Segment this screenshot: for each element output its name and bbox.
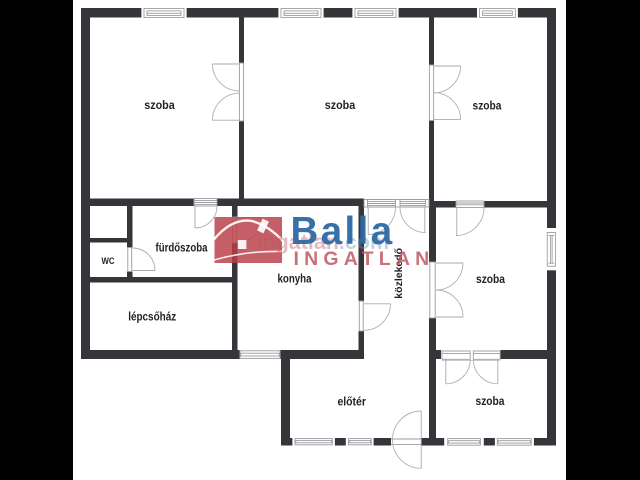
svg-text:fürdőszoba: fürdőszoba (156, 240, 208, 254)
svg-text:szoba: szoba (476, 272, 505, 286)
svg-text:szoba: szoba (473, 99, 502, 113)
svg-text:szoba: szoba (144, 98, 175, 112)
svg-text:konyha: konyha (278, 271, 312, 285)
svg-text:szoba: szoba (325, 98, 356, 112)
svg-text:Balla: Balla (291, 210, 395, 253)
svg-text:lépcsőház: lépcsőház (128, 309, 176, 323)
svg-text:előtér: előtér (337, 395, 366, 409)
svg-text:szoba: szoba (476, 394, 505, 408)
svg-text:WC: WC (102, 256, 115, 266)
svg-text:INGATLAN: INGATLAN (294, 248, 435, 270)
